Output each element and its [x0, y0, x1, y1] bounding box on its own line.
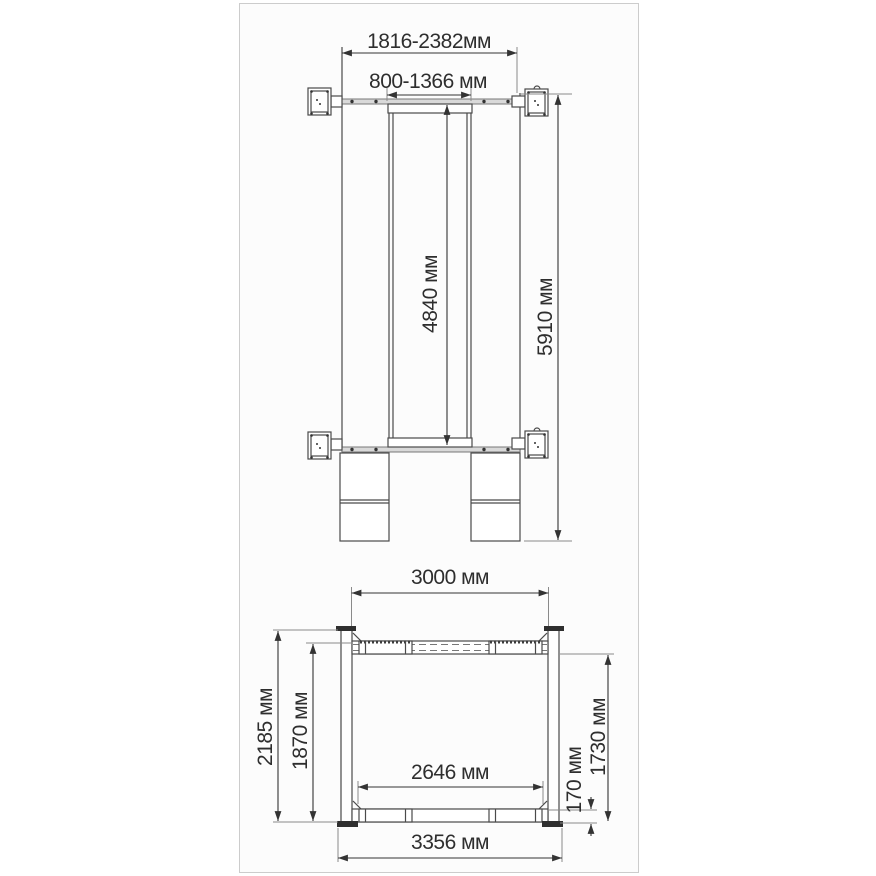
right-post [548, 630, 559, 822]
lift-dimensional-drawing: 1816-2382мм 800-1366 мм 4840 мм 5910 мм … [0, 0, 876, 876]
dim-carriage-width-label: 800-1366 мм [343, 70, 513, 94]
left-base-plate [337, 821, 358, 827]
dim-lifting-height-label: 1870 мм [289, 676, 313, 786]
top-crossbeam [342, 99, 520, 104]
left-ramp [340, 453, 389, 541]
platform-top-end [388, 104, 472, 113]
dim-overall-length-label: 5910 мм [534, 262, 558, 372]
dim-inner-width-label: 2646 мм [380, 761, 520, 785]
dim-post-spacing-label: 3000 мм [380, 566, 520, 590]
left-post [341, 630, 352, 822]
dim-overall-width-bottom-label: 3356 мм [380, 831, 520, 855]
dim-pad-height-label: 170 мм [563, 735, 587, 825]
bottom-crossbeam [342, 447, 520, 452]
drawing-linework [0, 0, 876, 876]
platform-bottom-end [388, 438, 472, 447]
left-post-cap [336, 626, 356, 631]
dim-overall-height-label: 2185 мм [254, 672, 278, 782]
dim-overall-width-top-label: 1816-2382мм [344, 30, 514, 54]
right-base-plate [542, 821, 563, 827]
right-post-cap [544, 626, 564, 631]
dim-max-lift-height-label: 1730 мм [587, 682, 611, 792]
dim-platform-length-label: 4840 мм [419, 239, 443, 349]
right-ramp [471, 453, 520, 541]
